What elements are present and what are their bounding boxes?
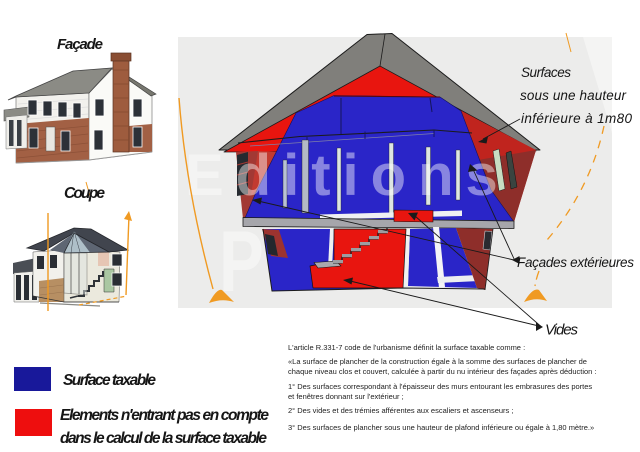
svg-text:Façade: Façade <box>57 36 103 53</box>
svg-text:«La surface de plancher de la: «La surface de plancher de la constructi… <box>288 357 587 366</box>
svg-text:et fenêtres donnant sur l'exté: et fenêtres donnant sur l'extérieur ; <box>288 392 404 401</box>
svg-text:3° Des surfaces de plancher so: 3° Des surfaces de plancher sous une hau… <box>288 423 594 432</box>
svg-text:inférieure à 1m80: inférieure à 1m80 <box>521 111 632 126</box>
svg-text:1° Des surfaces correspondant: 1° Des surfaces correspondant à l'épaiss… <box>288 382 592 391</box>
svg-text:2° Des vides et des trémies af: 2° Des vides et des trémies afférentes a… <box>288 406 513 415</box>
svg-text:Façades extérieures: Façades extérieures <box>517 255 634 270</box>
svg-text:Editions: Editions <box>185 143 510 208</box>
svg-text:L'article R.331-7 code de l'ur: L'article R.331-7 code de l'urbanisme dé… <box>288 343 525 352</box>
svg-text:Surface taxable: Surface taxable <box>63 372 156 389</box>
svg-text:sous une hauteur: sous une hauteur <box>520 88 627 103</box>
svg-text:Elements n'entrant pas en comp: Elements n'entrant pas en compte <box>60 407 269 424</box>
svg-text:Vides: Vides <box>545 322 579 339</box>
svg-text:dans le calcul de la surface t: dans le calcul de la surface taxable <box>60 430 267 447</box>
svg-text:chaque niveau clos et couvert,: chaque niveau clos et couvert, calculée … <box>288 367 597 376</box>
svg-text:Coupe: Coupe <box>64 185 105 202</box>
svg-text:Surfaces: Surfaces <box>521 65 571 80</box>
